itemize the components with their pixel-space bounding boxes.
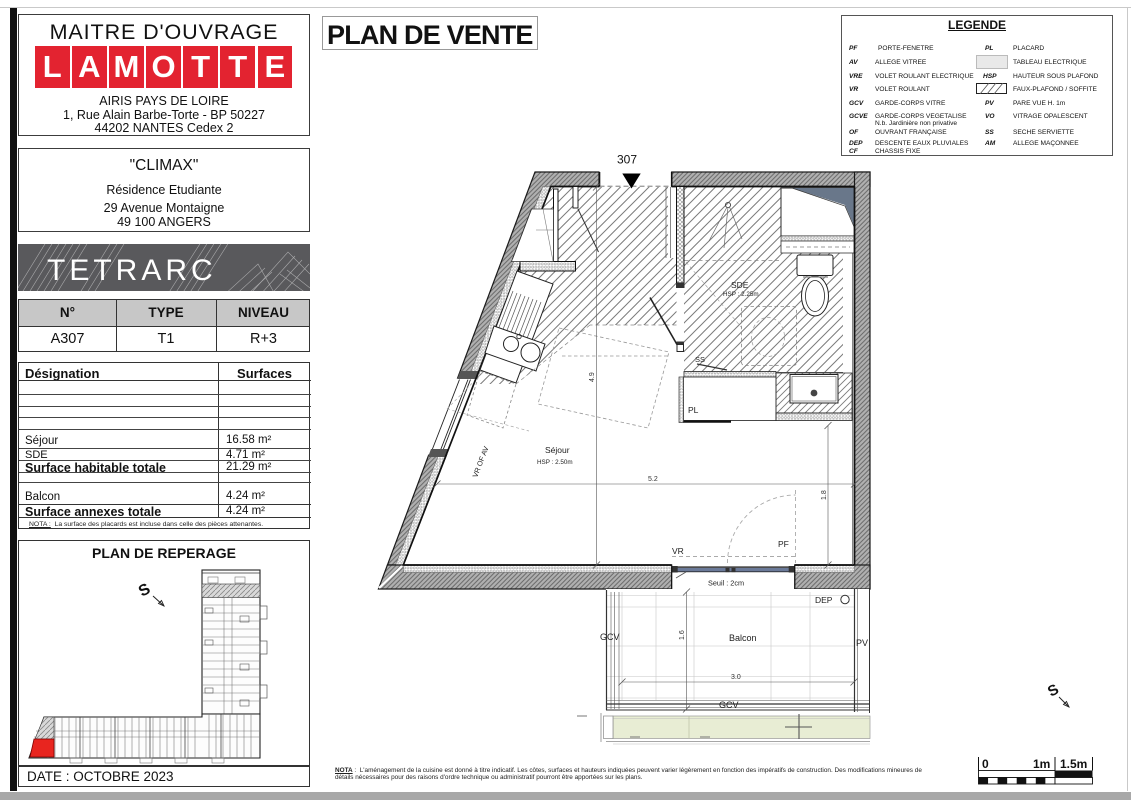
svg-text:HSP : 2.25m: HSP : 2.25m <box>723 291 759 298</box>
svg-text:SS: SS <box>695 355 705 364</box>
svg-text:307: 307 <box>617 153 637 167</box>
svg-text:PL: PL <box>688 405 699 415</box>
svg-text:1.8: 1.8 <box>821 490 828 500</box>
svg-text:1.6: 1.6 <box>679 630 686 640</box>
svg-text:Seuil : 2cm: Seuil : 2cm <box>708 579 744 588</box>
svg-text:HSP : 2.50m: HSP : 2.50m <box>537 459 573 466</box>
svg-text:GCV: GCV <box>719 700 739 710</box>
svg-text:Balcon: Balcon <box>729 633 757 643</box>
svg-text:PF: PF <box>778 539 789 549</box>
svg-text:VR: VR <box>672 546 684 556</box>
svg-text:1.5m: 1.5m <box>1060 757 1087 771</box>
svg-text:S: S <box>136 580 154 600</box>
svg-text:Séjour: Séjour <box>545 445 570 455</box>
svg-text:GCV: GCV <box>600 632 620 642</box>
svg-text:DEP: DEP <box>815 595 833 605</box>
svg-text:SDE: SDE <box>731 280 749 290</box>
svg-text:1m: 1m <box>1033 757 1050 771</box>
svg-text:3.0: 3.0 <box>731 674 741 681</box>
svg-text:0: 0 <box>982 757 989 771</box>
svg-text:4.9: 4.9 <box>589 372 596 382</box>
svg-text:5.2: 5.2 <box>648 476 658 483</box>
svg-text:PV: PV <box>856 638 868 648</box>
